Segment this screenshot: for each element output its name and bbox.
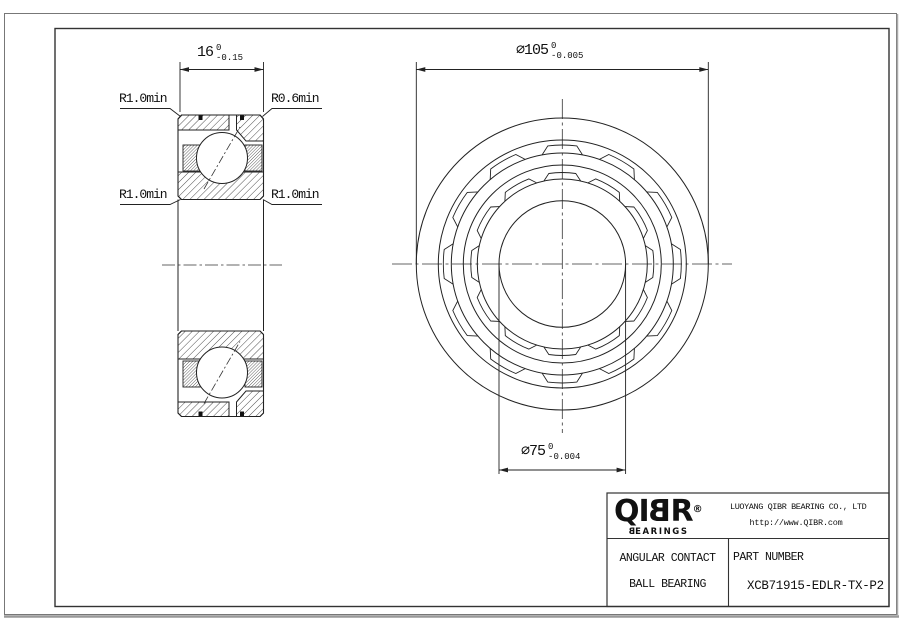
part-number-value: XCB71915-EDLR-TX-P2 [747, 579, 884, 593]
dimension-od-value: ⌀105 [516, 43, 548, 58]
qibr-logo-subtitle: BEARINGS [627, 527, 689, 537]
company-name: LUOYANG QIBR BEARING CO., LTD [730, 502, 862, 512]
front-view [392, 62, 732, 474]
dimension-od-tolerance: 0 -0.005 [551, 42, 583, 60]
section-view [120, 62, 322, 417]
registered-mark: ® [693, 504, 702, 515]
dimension-width-value: 16 [197, 45, 213, 60]
product-name: ANGULAR CONTACT BALL BEARING [607, 546, 728, 598]
dimension-bore-value: ⌀75 [521, 444, 545, 459]
section-top [178, 115, 264, 200]
dimension-bore-tolerance: 0 -0.004 [548, 443, 580, 461]
company-website: http://www.QIBR.com [730, 518, 862, 528]
callout-radius-top-right: R0.6min [271, 92, 319, 106]
part-number-label: PART NUMBER [733, 551, 803, 564]
callout-radius-mid-right: R1.0min [271, 188, 319, 202]
dimension-bore: ⌀75 0 -0.004 [521, 444, 580, 462]
bearing-drawing-page: 16 0 -0.15 ⌀105 0 -0.005 ⌀75 0 -0.004 R1… [0, 0, 900, 636]
section-bottom [178, 331, 264, 417]
callout-radius-top-left: R1.0min [119, 92, 167, 106]
dimension-od: ⌀105 0 -0.005 [516, 43, 583, 61]
callout-radius-mid-left: R1.0min [119, 188, 167, 202]
dimension-width-tolerance: 0 -0.15 [216, 44, 243, 62]
qibr-logo: QIBR® [614, 498, 702, 526]
dimension-width-lines [180, 62, 264, 112]
dimension-width: 16 0 -0.15 [197, 45, 243, 63]
